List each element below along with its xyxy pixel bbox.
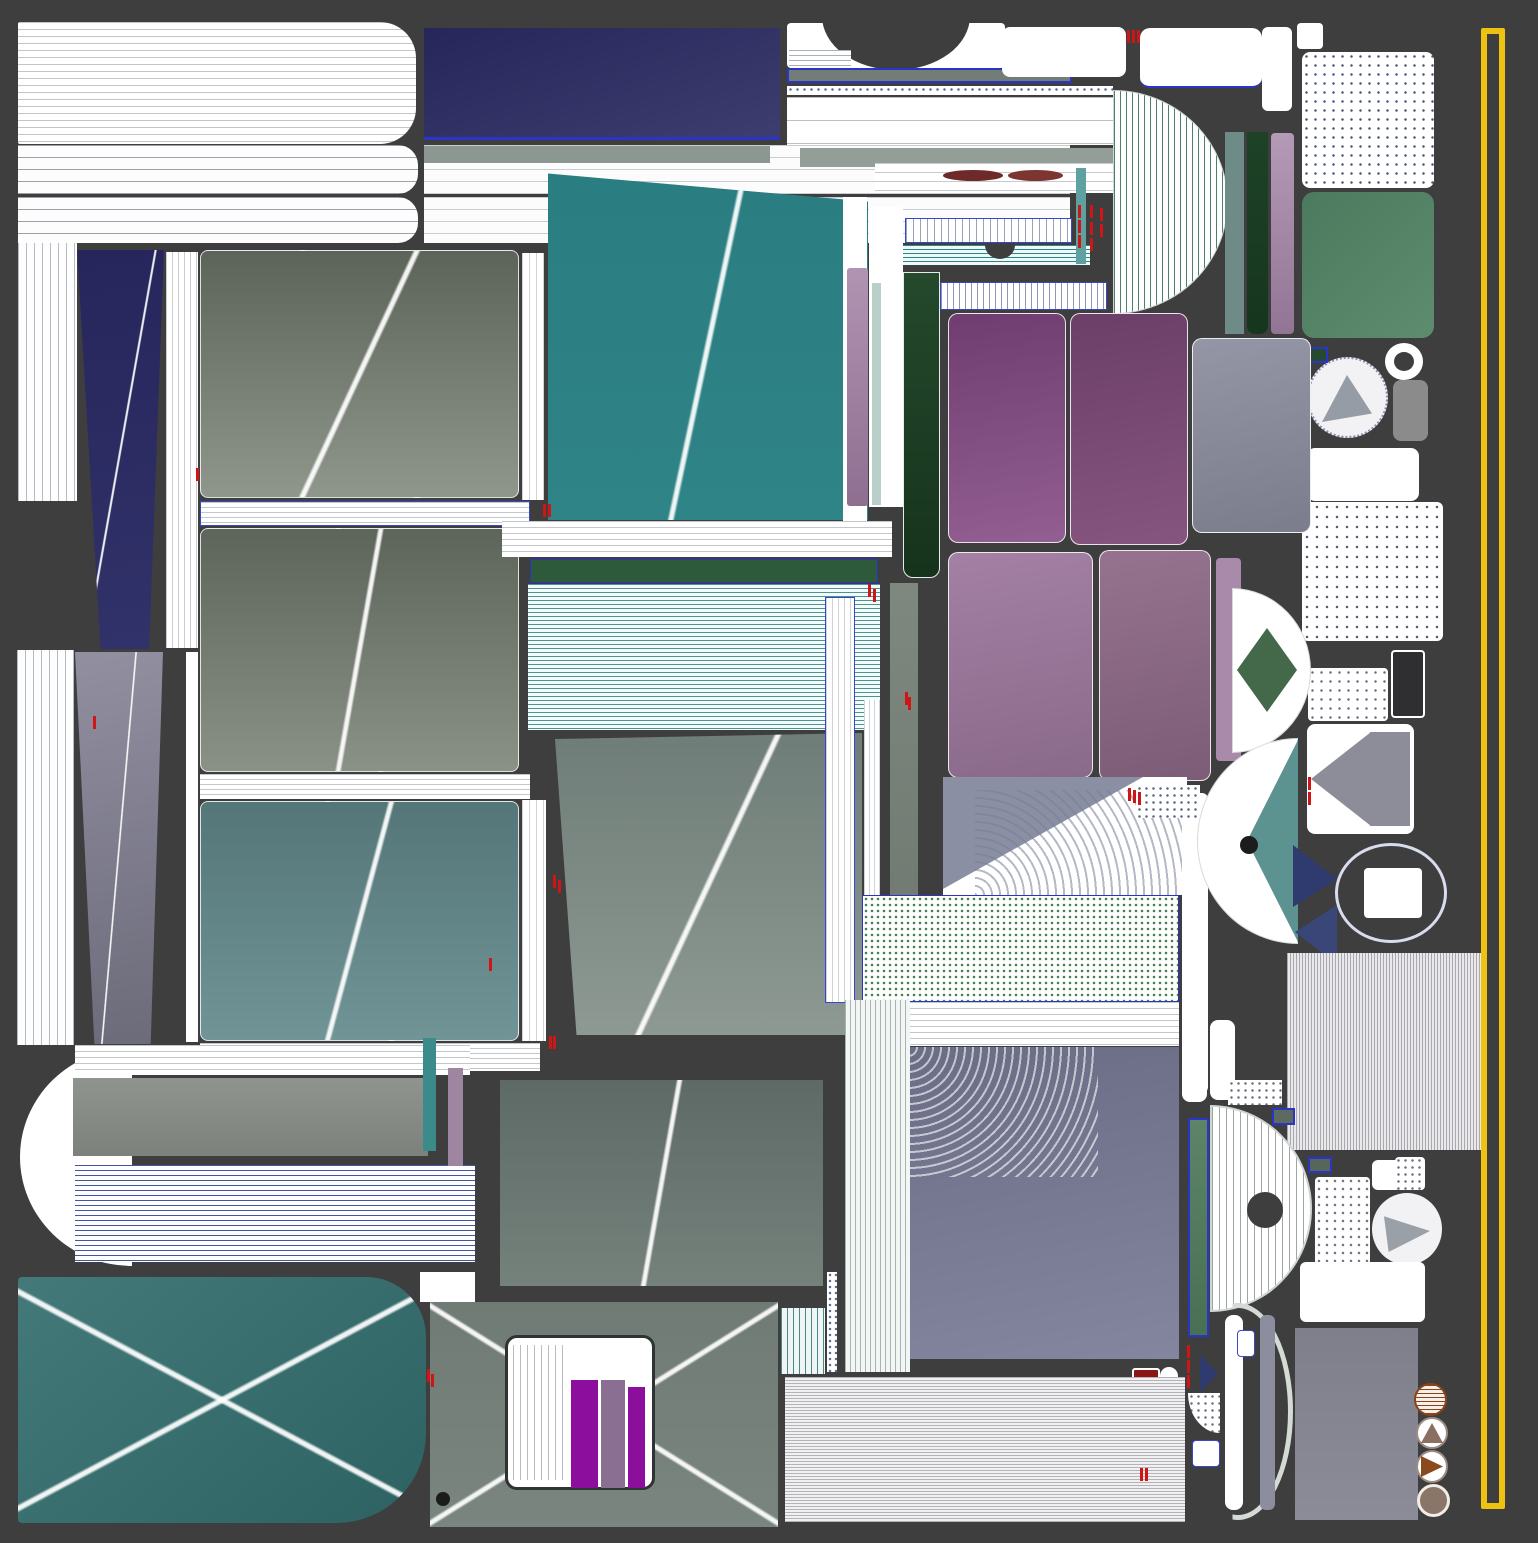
graygreen-chip[interactable] bbox=[1272, 1108, 1295, 1125]
seam-tick bbox=[548, 504, 551, 517]
dotted-col-2[interactable] bbox=[17, 650, 74, 1045]
slat-2[interactable] bbox=[200, 774, 530, 799]
slats-above-slate[interactable] bbox=[908, 1002, 1179, 1046]
purple-panel-2[interactable] bbox=[1070, 313, 1188, 545]
dotted-col-1[interactable] bbox=[18, 243, 77, 501]
white-col-l2[interactable] bbox=[186, 652, 198, 1042]
seam-tick bbox=[1187, 1375, 1190, 1388]
seam-tick bbox=[1090, 205, 1093, 218]
slate-panel-big[interactable] bbox=[555, 733, 862, 1035]
white-rr-tr5[interactable] bbox=[1307, 448, 1419, 501]
gray-striped-block[interactable] bbox=[73, 1078, 428, 1156]
seam-tick bbox=[1078, 205, 1081, 218]
seam-tick bbox=[1133, 790, 1136, 803]
seam-tick bbox=[558, 880, 561, 893]
white-chip-c1[interactable] bbox=[1192, 1440, 1220, 1467]
white-col-r2[interactable] bbox=[522, 800, 546, 1041]
selected-thin-island-outline[interactable] bbox=[1481, 28, 1505, 1509]
teal-bar-sm2[interactable] bbox=[423, 1038, 436, 1151]
teal-thin-bar[interactable] bbox=[872, 283, 881, 505]
seam-tick bbox=[1078, 235, 1081, 248]
slate-panel[interactable] bbox=[1192, 338, 1311, 533]
seam-tick bbox=[908, 697, 911, 710]
maroon-lens-1[interactable] bbox=[943, 170, 1003, 181]
white-col-r1[interactable] bbox=[522, 253, 544, 500]
white-dots-b3[interactable] bbox=[1315, 1177, 1370, 1265]
dark-green-bar-h[interactable] bbox=[530, 559, 878, 583]
mauve-panel-1[interactable] bbox=[948, 552, 1093, 778]
sage-block-1[interactable] bbox=[200, 250, 519, 498]
room-slats[interactable] bbox=[513, 1345, 567, 1480]
seam-tick bbox=[873, 589, 876, 602]
mauve-bar-sm[interactable] bbox=[448, 1068, 463, 1166]
slate-block-b[interactable] bbox=[1295, 1328, 1418, 1520]
fence-row-2[interactable] bbox=[940, 282, 1107, 310]
dotted-panel-tr2[interactable] bbox=[1302, 502, 1443, 641]
white-rect-b[interactable] bbox=[1300, 1262, 1425, 1322]
white-dots-chip-top[interactable] bbox=[1228, 1080, 1282, 1105]
slat-1[interactable] bbox=[200, 501, 530, 526]
seam-tick bbox=[543, 504, 546, 517]
seam-tick bbox=[1127, 30, 1130, 43]
braid-col[interactable] bbox=[827, 1272, 837, 1372]
seam-tick bbox=[1308, 777, 1311, 790]
stripe-band-b2[interactable] bbox=[18, 197, 418, 243]
white-ring[interactable] bbox=[1385, 343, 1423, 380]
white-col-v[interactable] bbox=[825, 597, 855, 1003]
seam-tick bbox=[1308, 792, 1311, 805]
seam-tick bbox=[553, 1036, 556, 1049]
braid-row[interactable] bbox=[787, 86, 1113, 95]
seam-tick bbox=[1187, 1345, 1190, 1358]
seam-tick bbox=[1137, 30, 1140, 43]
brown-circle-1[interactable] bbox=[1414, 1383, 1447, 1416]
white-rr-2[interactable] bbox=[1140, 28, 1262, 88]
white-bar-tr3[interactable] bbox=[1262, 27, 1292, 111]
white-bar-b1[interactable] bbox=[1182, 1032, 1207, 1102]
green-chip-2[interactable] bbox=[1308, 1157, 1332, 1173]
stripe-band-b1[interactable] bbox=[18, 145, 418, 194]
room-dot bbox=[436, 1492, 450, 1506]
rect-in-circle[interactable] bbox=[1364, 868, 1422, 918]
magenta-bar-2[interactable] bbox=[628, 1387, 645, 1488]
teal-cols-sm[interactable] bbox=[781, 1308, 825, 1374]
rect-in-right bbox=[1370, 732, 1410, 826]
seam-tick bbox=[196, 468, 199, 481]
seam-tick bbox=[431, 1374, 434, 1387]
green-bar-tall[interactable] bbox=[1188, 1118, 1209, 1337]
seam-tick bbox=[427, 1369, 430, 1382]
seam-tick bbox=[553, 875, 556, 888]
white-col-1[interactable] bbox=[166, 252, 198, 648]
slats-under-hammock[interactable] bbox=[789, 50, 851, 66]
seam-tick bbox=[489, 958, 492, 971]
blue-ruled-panel[interactable] bbox=[75, 1165, 475, 1262]
striped-gray-panel[interactable] bbox=[1287, 953, 1481, 1150]
slate-fan bbox=[908, 1047, 1098, 1177]
seam-tick bbox=[1090, 238, 1093, 251]
seam-tick bbox=[868, 584, 871, 597]
stripe-block-a[interactable] bbox=[18, 22, 416, 144]
seam-tick bbox=[1100, 208, 1103, 221]
mauve-panel-2[interactable] bbox=[1099, 550, 1211, 781]
mauve-bar-left[interactable] bbox=[847, 268, 868, 506]
sage-block-2[interactable] bbox=[200, 528, 519, 772]
seam-tick bbox=[1090, 222, 1093, 235]
white-band-mid[interactable] bbox=[787, 97, 1117, 145]
seam-tick bbox=[1128, 788, 1131, 801]
white-dots-fence[interactable] bbox=[1136, 785, 1200, 818]
uv-atlas-viewport bbox=[0, 0, 1538, 1543]
seam-tick bbox=[1187, 1360, 1190, 1373]
white-rr-1[interactable] bbox=[1002, 27, 1126, 77]
green-square[interactable] bbox=[1302, 192, 1434, 338]
dots-chip-b[interactable] bbox=[1395, 1157, 1425, 1190]
brown-circle-4[interactable] bbox=[1417, 1484, 1450, 1517]
maroon-lens-2[interactable] bbox=[1008, 170, 1063, 181]
gray-bar-b[interactable] bbox=[1260, 1315, 1275, 1510]
dark-green-bar-1[interactable] bbox=[1247, 132, 1268, 334]
gray-pill[interactable] bbox=[1393, 380, 1428, 441]
seam-tick bbox=[93, 716, 96, 729]
teal-block-3[interactable] bbox=[200, 801, 519, 1041]
teal-block-bl[interactable] bbox=[18, 1277, 426, 1523]
mauve-bar-1[interactable] bbox=[1271, 133, 1294, 334]
seam-tick bbox=[1138, 792, 1141, 805]
seam-tick bbox=[1132, 30, 1135, 43]
white-dots-sm-1[interactable] bbox=[1308, 668, 1388, 721]
teal-panel-big[interactable] bbox=[548, 170, 868, 520]
striped-wide-panel[interactable] bbox=[785, 1377, 1185, 1522]
navy-panel-top[interactable] bbox=[424, 28, 780, 140]
slats-bl[interactable] bbox=[75, 1045, 470, 1075]
seam-tick bbox=[1140, 1468, 1143, 1481]
dark-green-bar-2[interactable] bbox=[903, 272, 940, 578]
gray-bar-room[interactable] bbox=[601, 1380, 625, 1488]
magenta-bar-1[interactable] bbox=[571, 1380, 598, 1488]
slate-teal-bar[interactable] bbox=[1225, 132, 1244, 334]
charcoal-rect[interactable] bbox=[1391, 650, 1425, 718]
slat-t[interactable] bbox=[502, 521, 892, 557]
seam-tick bbox=[1145, 1468, 1148, 1481]
stripe-cols-b[interactable] bbox=[845, 1000, 910, 1372]
purple-panel-1[interactable] bbox=[948, 313, 1066, 543]
seam-tick bbox=[549, 1036, 552, 1049]
fence-row-1[interactable] bbox=[905, 218, 1072, 243]
dotted-panel-tr1[interactable] bbox=[1302, 52, 1434, 188]
white-sm-bl[interactable] bbox=[420, 1272, 475, 1302]
v-block[interactable] bbox=[500, 1080, 823, 1286]
seam-tick bbox=[1078, 220, 1081, 233]
green-dot-grid[interactable] bbox=[862, 895, 1179, 1002]
disc-hole bbox=[1247, 1192, 1283, 1228]
seam-tick bbox=[1100, 224, 1103, 237]
white-sq-tr4[interactable] bbox=[1297, 23, 1323, 49]
white-chip-c2[interactable] bbox=[1237, 1330, 1255, 1357]
black-dot bbox=[1240, 836, 1258, 854]
gray-bar-left[interactable] bbox=[424, 146, 770, 163]
